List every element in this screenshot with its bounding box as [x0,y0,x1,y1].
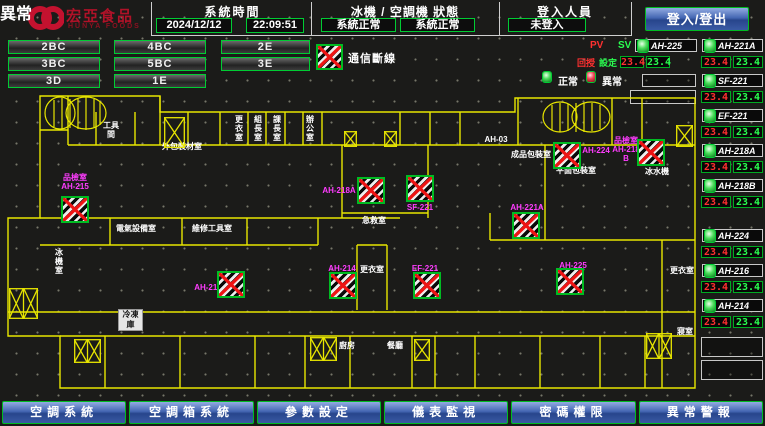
hmi-screen: 宏亞食品 HUNYA FOODS 系統時間 2024/12/12 22:09:5… [0,0,765,426]
room-label: 電氣設備室 [114,224,158,233]
map-equipment-EF-221-comm-loss-icon[interactable] [413,272,441,299]
room-label: 冰機室 [54,248,64,275]
room-label: 冷凍庫 [118,309,143,331]
stair-icon [344,131,357,147]
room-label: 廚房 [338,341,356,350]
room-label: 更衣室 [668,266,696,275]
room-label: 急救室 [361,216,387,225]
floor-map: 工具間外包裝材室更衣室組長室課長室辦公室AH-03成品包裝室平面包裝室冰水機電氣… [0,0,765,426]
room-label: 餐廳 [386,341,404,350]
map-equipment-AH-216-comm-loss-icon[interactable] [217,271,245,298]
room-label: 工具間 [101,121,121,139]
map-equipment-AH-218A-comm-loss-icon[interactable] [357,177,385,204]
room-label: 課長室 [272,115,282,142]
map-equipment-AH-214-comm-loss-icon[interactable] [329,272,357,299]
room-label: 辦公室 [305,115,315,142]
room-label: AH-03 [482,135,510,144]
equipment-label: 品檢室 AH-218B [612,136,640,163]
stair-icon [164,117,185,148]
map-equipment-AH-218B-comm-loss-icon[interactable] [637,139,665,166]
room-label: 組長室 [253,115,263,142]
room-label: 冰水機 [643,167,671,176]
nav-password-permission-button[interactable]: 密碼權限 [511,401,635,424]
room-label: 更衣室 [234,115,244,142]
stair-icon [310,337,337,361]
stair-icon [384,131,397,147]
map-equipment-SF-221-comm-loss-icon[interactable] [406,175,434,202]
map-equipment-AH-215-comm-loss-icon[interactable] [61,196,89,223]
room-label: 寢室 [675,327,695,336]
nav-meter-monitoring-button[interactable]: 儀表監視 [384,401,508,424]
map-equipment-AH-221A-comm-loss-icon[interactable] [512,212,540,239]
stair-icon [414,339,430,361]
room-label: 更衣室 [359,265,385,274]
equipment-label: AH-218A [321,186,357,195]
map-equipment-AH-225-comm-loss-icon[interactable] [556,268,584,295]
map-equipment-AH-224-comm-loss-icon[interactable] [553,142,581,169]
stair-icon [74,339,101,363]
stair-icon [646,333,672,359]
nav-hvac-system-button[interactable]: 空調系統 [2,401,126,424]
equipment-label: AH-221A [509,203,545,212]
nav-bar: 空調系統空調箱系統參數設定儀表監視密碼權限異常警報 [2,401,763,424]
nav-abnormal-alarm-button[interactable]: 異常警報 [639,401,763,424]
room-label: 成品包裝室 [505,150,557,159]
nav-ahu-system-button[interactable]: 空調箱系統 [129,401,253,424]
equipment-label: AH-224 [581,146,611,155]
nav-parameter-settings-button[interactable]: 參數設定 [257,401,381,424]
room-label: 維修工具室 [190,224,234,233]
stair-icon [676,125,693,147]
stair-icon [9,288,38,319]
equipment-label: 品檢室 AH-215 [57,173,93,191]
equipment-label: SF-221 [404,203,436,212]
